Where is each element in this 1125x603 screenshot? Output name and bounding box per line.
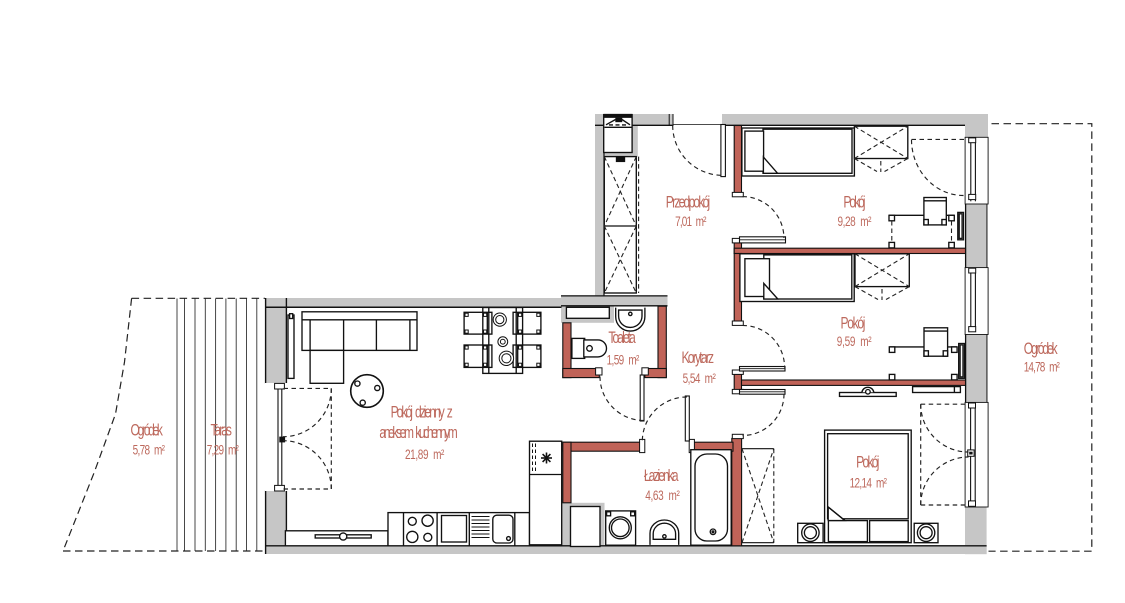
svg-text:7,29 m²: 7,29 m² (207, 442, 239, 458)
svg-text:9,59 m²: 9,59 m² (837, 334, 872, 350)
svg-text:4,63 m²: 4,63 m² (645, 487, 680, 503)
svg-text:Ogródek: Ogródek (1024, 341, 1059, 359)
svg-text:Taras: Taras (211, 422, 232, 440)
svg-text:14,78 m²: 14,78 m² (1024, 359, 1060, 375)
svg-text:Toaleta: Toaleta (608, 329, 635, 347)
svg-text:5,78 m²: 5,78 m² (133, 442, 165, 458)
svg-text:Korytarz: Korytarz (682, 349, 715, 367)
svg-text:aneksem kuchennym: aneksem kuchennym (379, 424, 457, 442)
svg-text:5,54 m²: 5,54 m² (683, 371, 716, 387)
svg-text:Przedpokój: Przedpokój (666, 194, 710, 212)
svg-text:9,28 m²: 9,28 m² (838, 213, 872, 229)
svg-text:12,14 m²: 12,14 m² (850, 475, 887, 491)
svg-text:21,89 m²: 21,89 m² (405, 446, 444, 462)
svg-text:Ogródek: Ogródek (131, 422, 164, 440)
svg-text:Pokój: Pokój (841, 315, 866, 333)
svg-text:7,01 m²: 7,01 m² (675, 213, 706, 229)
svg-text:Pokój dzienny z: Pokój dzienny z (391, 404, 453, 422)
svg-text:Łazienka: Łazienka (644, 467, 679, 485)
svg-text:1,59 m²: 1,59 m² (607, 352, 640, 368)
svg-text:Pokój: Pokój (856, 454, 879, 472)
svg-text:Pokój: Pokój (843, 194, 865, 212)
